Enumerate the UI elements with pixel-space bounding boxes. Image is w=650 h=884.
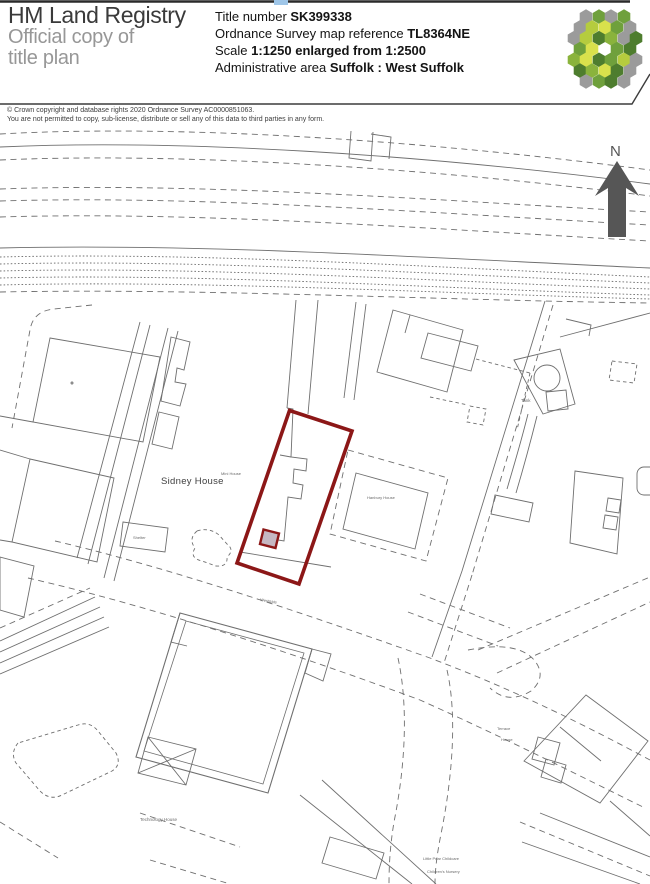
north-arrow: N: [595, 143, 639, 237]
map-annotation-blue: [637, 467, 650, 495]
brand-subtitle-line1: Official copy of: [8, 27, 186, 47]
title-boundary: [237, 411, 352, 585]
registered-title-boundary: [237, 411, 352, 585]
scale-value: 1:1250 enlarged from 1:2500: [251, 43, 426, 58]
label-childcare-2: Children's Nursery: [427, 869, 460, 874]
title-number-value: SK399338: [290, 9, 351, 24]
north-arrow-icon: [595, 161, 639, 237]
label-hanbury-house: Hanbury House: [367, 495, 396, 500]
scale-label: Scale: [215, 43, 251, 58]
brand-title: HM Land Registry: [8, 4, 186, 27]
title-number-label: Title number: [215, 9, 290, 24]
hm-land-registry-logo-icon: [558, 2, 650, 98]
copyright-line1: © Crown copyright and database rights 20…: [7, 106, 324, 115]
os-reference-row: Ordnance Survey map reference TL8364NE: [215, 26, 470, 42]
top-edge-mark: [274, 0, 288, 5]
admin-area-value: Suffolk : West Suffolk: [330, 60, 464, 75]
boundary-inner-square: [260, 530, 279, 549]
title-info-block: Title number SK399338 Ordnance Survey ma…: [215, 9, 470, 77]
title-number-row: Title number SK399338: [215, 9, 470, 25]
hm-land-registry-brand: HM Land Registry Official copy of title …: [8, 4, 186, 68]
label-sidney-house: Sidney House: [161, 476, 224, 487]
label-small-house: Mini House: [221, 471, 242, 476]
title-plan-page: N: [0, 0, 650, 884]
copyright-line2: You are not permitted to copy, sub-licen…: [7, 115, 324, 124]
tank-circle: [534, 365, 560, 391]
title-plan-map: N: [0, 0, 650, 884]
label-terrace-house-1: Terrace: [497, 726, 511, 731]
label-road: Westgate: [260, 597, 278, 605]
label-terrace-house-2: House: [501, 737, 513, 742]
admin-area-row: Administrative area Suffolk : West Suffo…: [215, 60, 470, 76]
north-label: N: [610, 143, 621, 160]
railway-lines: [0, 131, 650, 303]
os-reference-label: Ordnance Survey map reference: [215, 26, 407, 41]
os-reference-value: TL8364NE: [407, 26, 470, 41]
road-lines: [0, 541, 650, 884]
copyright-notice: © Crown copyright and database rights 20…: [7, 106, 324, 124]
label-childcare-1: Little Pear Childcare: [423, 856, 460, 861]
label-tank: Tank: [521, 398, 531, 403]
brand-subtitle-line2: title plan: [8, 48, 186, 68]
admin-area-label: Administrative area: [215, 60, 330, 75]
label-technology-house: Technology House: [140, 817, 178, 822]
scale-row: Scale 1:1250 enlarged from 1:2500: [215, 43, 470, 59]
label-shelter: Shelter: [133, 535, 146, 540]
